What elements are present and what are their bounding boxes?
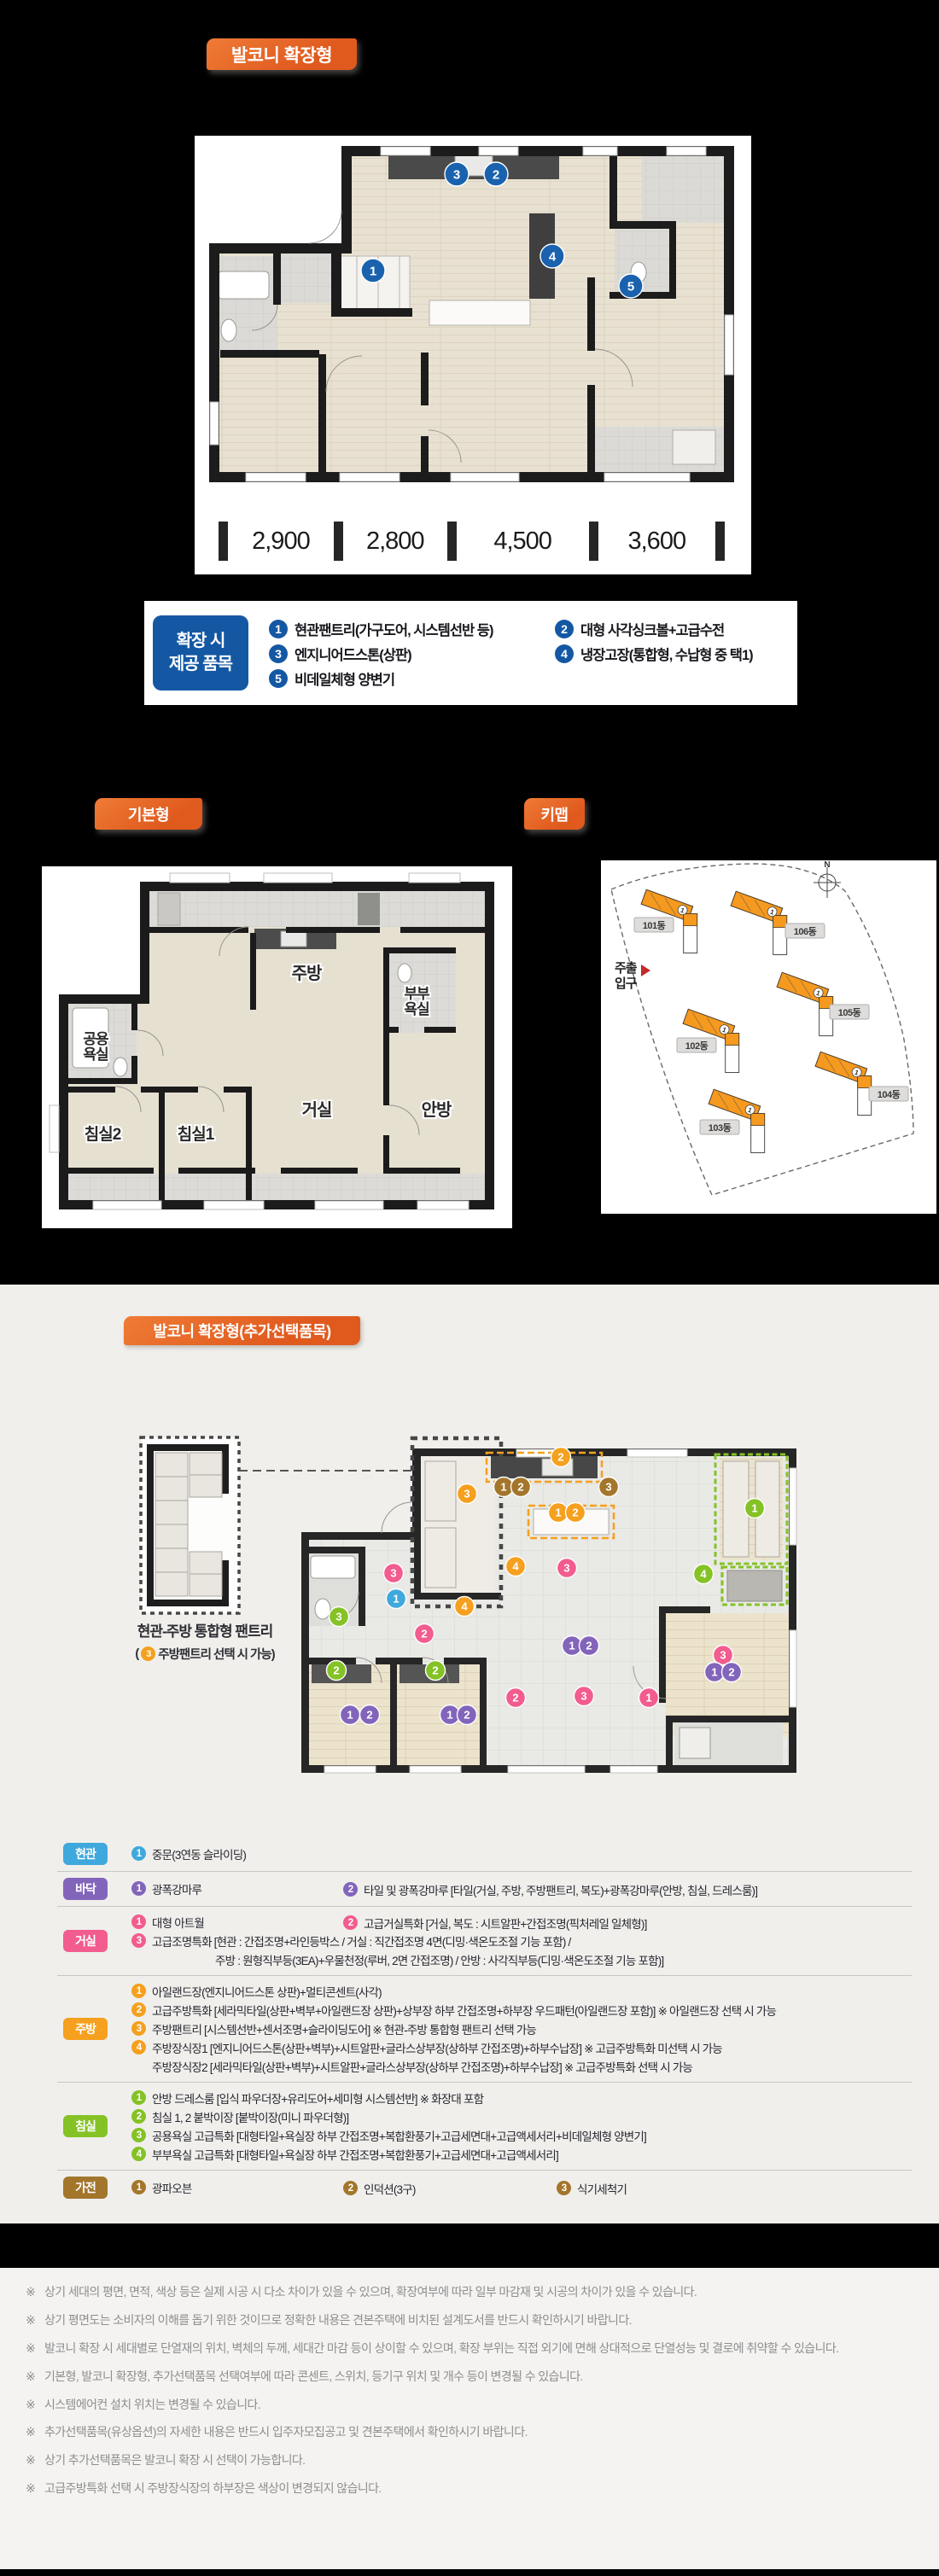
legend-category-badge: 가전	[63, 2177, 108, 2199]
svg-text:3: 3	[605, 1481, 611, 1494]
legend-line: 1대형 아트월2고급거실특화 [거실, 복도 : 시트알판+간접조명(픽처레일 …	[131, 1913, 912, 1932]
note-item: ※고급주방특화 선택 시 주방장식장의 하부장은 색상이 변경되지 않습니다.	[26, 2480, 920, 2497]
expansion-item-label: 비데일체형 양변기	[295, 668, 394, 689]
note-marker: ※	[26, 2452, 35, 2469]
svg-text:2: 2	[728, 1666, 734, 1679]
note-text: 시스템에어컨 설치 위치는 변경될 수 있습니다.	[44, 2398, 260, 2411]
dimension-tick	[334, 522, 343, 561]
item-number-icon: 1	[131, 1915, 146, 1929]
expansion-items-card: 확장 시 제공 품목 1현관팬트리(가구도어, 시스템선반 등)2대형 사각싱크…	[144, 601, 797, 705]
note-text: 추가선택품목(유상옵션)의 자세한 내용은 반드시 입주자모집공고 및 견본주택…	[44, 2425, 528, 2439]
dimension-bar: 2,9002,8004,5003,600	[219, 522, 725, 561]
plan-marker: 2	[511, 1477, 531, 1497]
plan-marker: 2	[327, 1661, 347, 1681]
note-item: ※추가선택품목(유상옵션)의 자세한 내용은 반드시 입주자모집공고 및 견본주…	[26, 2424, 920, 2441]
entrance-arrow-icon	[641, 965, 650, 976]
legend-badge-cell: 침실	[57, 2115, 131, 2137]
note-item: ※상기 추가선택품목은 발코니 확장 시 선택이 가능합니다.	[26, 2452, 920, 2469]
legend-item: 2고급주방특화 [세라믹타일(상판+벽부+아일랜드장 상판)+상부장 하부 간접…	[131, 2002, 776, 2019]
legend-item: 3주방팬트리 [시스템선반+센서조명+슬라이딩도어] ※ 현관-주방 통합형 팬…	[131, 2020, 536, 2037]
note-text: 상기 세대의 평면, 면적, 색상 등은 실제 시공 시 다소 차이가 있을 수…	[44, 2285, 697, 2299]
title-badge-basic: 기본형	[95, 798, 202, 830]
svg-text:3: 3	[390, 1567, 396, 1580]
plan-marker: 3	[330, 1607, 349, 1627]
item-number-icon: 2	[131, 2109, 146, 2124]
legend-item: 4부부욕실 고급특화 [대형타일+욕실장 하부 간접조명+복합환풍기+고급세면대…	[131, 2146, 558, 2163]
legend-line: 1광폭강마루2타일 및 광폭강마루 [타일(거실, 주방, 주방팬트리, 복도)…	[131, 1880, 912, 1898]
legend-line: 3공용욕실 고급특화 [대형타일+욕실장 하부 간접조명+복합환풍기+고급세면대…	[131, 2126, 912, 2145]
entrance-label-line2: 입구	[615, 976, 638, 991]
legend-badge-cell: 바닥	[57, 1878, 131, 1900]
legend-item: 2침실 1, 2 붙박이장 [붙박이장(미니 파우더형)]	[131, 2108, 348, 2125]
plan-marker: 2	[566, 1503, 586, 1523]
svg-text:1: 1	[569, 1640, 574, 1652]
plan-marker: 3	[458, 1484, 477, 1504]
legend-row-content: 1광폭강마루2타일 및 광폭강마루 [타일(거실, 주방, 주방팬트리, 복도)…	[131, 1880, 912, 1898]
svg-text:4: 4	[549, 249, 557, 264]
legend-line: 2고급주방특화 [세라믹타일(상판+벽부+아일랜드장 상판)+상부장 하부 간접…	[131, 2001, 912, 2019]
legend-item: 2인덕션(3구)	[343, 2180, 416, 2197]
legend-badge-cell: 현관	[57, 1843, 131, 1865]
svg-text:2: 2	[421, 1628, 427, 1641]
legend-row-content: 1중문(3연동 슬라이딩)	[131, 1845, 912, 1863]
legend-line: 3고급조명특화 [현관 : 간접조명+라인등박스 / 거실 : 직간접조명 4면…	[131, 1932, 912, 1950]
legend-row-content: 1광파오븐2인덕션(3구)3식기세척기	[131, 2178, 912, 2197]
svg-text:105동: 105동	[838, 1007, 861, 1018]
note-text: 고급주방특화 선택 시 주방장식장의 하부장은 색상이 변경되지 않습니다.	[44, 2481, 382, 2495]
legend-line: 주방 : 원형직부등(3EA)+우물천정(루버, 2면 간접조명) / 안방 :…	[131, 1950, 912, 1969]
expansion-item-label: 현관팬트리(가구도어, 시스템선반 등)	[295, 619, 493, 639]
legend-row: 바닥1광폭강마루2타일 및 광폭강마루 [타일(거실, 주방, 주방팬트리, 복…	[57, 1872, 912, 1907]
svg-text:1: 1	[347, 1709, 353, 1722]
legend-item: 3식기세척기	[557, 2180, 627, 2197]
keymap-buildings: 1101동1106동1105동1102동1104동1103동	[630, 889, 908, 1157]
item-number-icon: 2	[343, 1882, 358, 1897]
legend-row: 침실1안방 드레스룸 [입식 파우더장+유리도어+세미형 시스템선반] ※ 화장…	[57, 2083, 912, 2171]
legend-line: 1안방 드레스룸 [입식 파우더장+유리도어+세미형 시스템선반] ※ 화장대 …	[131, 2089, 912, 2107]
dimension-value: 4,500	[457, 527, 589, 556]
divider-band	[0, 2223, 939, 2268]
svg-text:2: 2	[464, 1709, 469, 1722]
legend-item-text: 고급주방특화 [세라믹타일(상판+벽부+아일랜드장 상판)+상부장 하부 간접조…	[152, 2002, 776, 2019]
plan-marker: 4	[455, 1597, 475, 1617]
legend-item: 3공용욕실 고급특화 [대형타일+욕실장 하부 간접조명+복합환풍기+고급세면대…	[131, 2127, 646, 2144]
plan-marker: 4	[694, 1565, 714, 1584]
legend-row: 주방1아일랜드장(엔지니어드스톤 상판)+멀티콘센트(사각)2고급주방특화 [세…	[57, 1976, 912, 2083]
note-text: 상기 평면도는 소비자의 이해를 돕기 위한 것이므로 정확한 내용은 견본주택…	[44, 2313, 632, 2327]
legend-item-text: 주방장식장1 [엔지니어드스톤(상판+벽부)+시트알판+글라스상부장(상하부 간…	[152, 2039, 722, 2056]
legend-item-text: 대형 아트월	[152, 1914, 204, 1931]
floorplan-expanded: 12345	[195, 136, 751, 518]
title-badge-optional: 발코니 확장형(추가선택품목)	[124, 1316, 360, 1345]
legend-category-badge: 침실	[63, 2115, 108, 2137]
dimension-tick	[589, 522, 598, 561]
expansion-item: 2대형 사각싱크볼+고급수전	[555, 620, 753, 638]
pantry-caption: 현관-주방 통합형 팬트리 ( 3 주방팬트리 선택 시 가능)	[85, 1619, 324, 1663]
legend-item: 4주방장식장1 [엔지니어드스톤(상판+벽부)+시트알판+글라스상부장(상하부 …	[131, 2039, 722, 2056]
dimension-tick	[715, 522, 725, 561]
svg-text:2: 2	[493, 167, 499, 182]
legend-item-text: 부부욕실 고급특화 [대형타일+욕실장 하부 간접조명+복합환풍기+고급세면대+…	[152, 2146, 558, 2163]
note-item: ※기본형, 발코니 확장형, 추가선택품목 선택여부에 따라 콘센트, 스위치,…	[26, 2369, 920, 2386]
legend-line: 1중문(3연동 슬라이딩)	[131, 1845, 912, 1863]
expansion-item: 5비데일체형 양변기	[269, 669, 555, 688]
item-number-icon: 5	[269, 669, 288, 688]
legend-item-text: 안방 드레스룸 [입식 파우더장+유리도어+세미형 시스템선반] ※ 화장대 포…	[152, 2089, 483, 2107]
plan-marker: 1	[745, 1499, 765, 1518]
plan-marker: 3	[557, 1559, 577, 1578]
item-number-icon: 2	[131, 2002, 146, 2017]
room-label: 침실2	[85, 1125, 121, 1144]
item-number-icon: 1	[269, 620, 288, 638]
caption-paren-open: (	[135, 1647, 138, 1661]
title-badge-keymap: 키맵	[524, 798, 585, 830]
expansion-label: 확장 시 제공 품목	[153, 615, 248, 691]
building-label: 103동	[700, 1120, 739, 1134]
svg-text:4: 4	[461, 1600, 468, 1613]
pantry-caption-title: 현관-주방 통합형 팬트리	[85, 1619, 324, 1641]
compass-icon	[814, 867, 841, 898]
plan-marker: 3	[384, 1564, 404, 1583]
legend-item-text: 인덕션(3구)	[364, 2180, 416, 2197]
building-label: 102동	[677, 1038, 716, 1052]
svg-text:3: 3	[335, 1611, 341, 1623]
floorplan-card-expanded: 12345 2,9002,8004,5003,600	[195, 136, 751, 574]
legend-line: 주방장식장2 [세라믹타일(상판+벽부)+시트알판+글라스상부장(상하부 간접조…	[131, 2057, 912, 2076]
legend-item: 2고급거실특화 [거실, 복도 : 시트알판+간접조명(픽처레일 일체형)]	[343, 1915, 647, 1932]
legend-category-badge: 주방	[63, 2018, 108, 2040]
svg-text:1: 1	[555, 1507, 561, 1519]
svg-text:1: 1	[500, 1481, 506, 1494]
legend-line: 2침실 1, 2 붙박이장 [붙박이장(미니 파우더형)]	[131, 2107, 912, 2126]
note-marker: ※	[26, 2312, 35, 2329]
legend-row-content: 1아일랜드장(엔지니어드스톤 상판)+멀티콘센트(사각)2고급주방특화 [세라믹…	[131, 1982, 912, 2076]
legend-line: 4부부욕실 고급특화 [대형타일+욕실장 하부 간접조명+복합환풍기+고급세면대…	[131, 2145, 912, 2164]
svg-text:106동: 106동	[794, 926, 817, 937]
legend-item: 1안방 드레스룸 [입식 파우더장+유리도어+세미형 시스템선반] ※ 화장대 …	[131, 2089, 483, 2107]
expansion-item: 1현관팬트리(가구도어, 시스템선반 등)	[269, 620, 555, 638]
legend-row-content: 1대형 아트월2고급거실특화 [거실, 복도 : 시트알판+간접조명(픽처레일 …	[131, 1913, 912, 1969]
legend-item: 2타일 및 광폭강마루 [타일(거실, 주방, 주방팬트리, 복도)+광폭강마루…	[343, 1881, 757, 1898]
legend-row: 거실1대형 아트월2고급거실특화 [거실, 복도 : 시트알판+간접조명(픽처레…	[57, 1907, 912, 1976]
svg-text:1: 1	[751, 1502, 757, 1515]
floorplan-optional: 231244123332231311432212121212	[77, 1417, 845, 1818]
building-label: 104동	[869, 1087, 908, 1101]
svg-text:2: 2	[557, 1451, 563, 1464]
legend-category-badge: 현관	[63, 1843, 108, 1865]
svg-text:1: 1	[711, 1666, 717, 1679]
legend-line: 1아일랜드장(엔지니어드스톤 상판)+멀티콘센트(사각)	[131, 1982, 912, 2001]
svg-text:4: 4	[512, 1560, 519, 1573]
dimension-value: 2,900	[228, 527, 334, 556]
note-text: 기본형, 발코니 확장형, 추가선택품목 선택여부에 따라 콘센트, 스위치, …	[44, 2369, 583, 2383]
building-label: 101동	[634, 918, 674, 932]
svg-text:1: 1	[645, 1692, 651, 1705]
item-number-icon: 3	[131, 2021, 146, 2036]
item-number-icon: 1	[131, 2090, 146, 2105]
legend-item-text: 고급조명특화 [현관 : 간접조명+라인등박스 / 거실 : 직간접조명 4면(…	[152, 1932, 570, 1949]
caption-note-text: 주방팬트리 선택 시 가능)	[158, 1645, 274, 1663]
plan-marker: 3	[574, 1687, 594, 1706]
floorplan-optional-wrap: 231244123332231311432212121212 현관-주방 통합형…	[77, 1417, 845, 1818]
legend-item-text: 주방팬트리 [시스템선반+센서조명+슬라이딩도어] ※ 현관-주방 통합형 팬트…	[152, 2020, 536, 2037]
svg-text:1: 1	[393, 1593, 399, 1606]
legend-item: 1광파오븐	[131, 2179, 191, 2196]
plan-marker: 1	[341, 1705, 360, 1725]
legend-badge-cell: 가전	[57, 2177, 131, 2199]
plan-marker: 4	[506, 1557, 526, 1576]
plan-marker: 2	[458, 1705, 477, 1725]
expansion-item: 4냉장고장(통합형, 수납형 중 택1)	[555, 644, 753, 663]
legend-item: 1아일랜드장(엔지니어드스톤 상판)+멀티콘센트(사각)	[131, 1983, 382, 2000]
building-icon: 1	[804, 1052, 885, 1119]
svg-text:3: 3	[563, 1562, 569, 1575]
title-badge-expanded: 발코니 확장형	[207, 38, 357, 70]
main-entrance: 주출 입구	[615, 961, 650, 991]
svg-text:103동: 103동	[709, 1122, 732, 1134]
svg-text:2: 2	[586, 1640, 592, 1652]
svg-text:101동: 101동	[643, 920, 666, 931]
legend-row: 현관1중문(3연동 슬라이딩)	[57, 1837, 912, 1872]
plan-marker: 2	[551, 1448, 571, 1467]
keymap-card: N 주출 입구 1101동1106동1105동1102동1104동1103동	[601, 860, 936, 1214]
plan-marker: 2	[722, 1663, 742, 1682]
svg-text:2: 2	[333, 1664, 339, 1677]
note-marker: ※	[26, 2397, 35, 2414]
svg-text:4: 4	[700, 1568, 707, 1581]
legend-item-text: 광폭강마루	[152, 1880, 201, 1897]
svg-text:2: 2	[366, 1709, 372, 1722]
plan-marker: 1	[639, 1688, 659, 1708]
svg-text:1: 1	[446, 1709, 452, 1722]
legend-line: 4주방장식장1 [엔지니어드스톤(상판+벽부)+시트알판+글라스상부장(상하부 …	[131, 2038, 912, 2057]
legend-line: 3주방팬트리 [시스템선반+센서조명+슬라이딩도어] ※ 현관-주방 통합형 팬…	[131, 2019, 912, 2038]
caption-number-icon: 3	[141, 1646, 155, 1661]
option-legend: 현관1중문(3연동 슬라이딩)바닥1광폭강마루2타일 및 광폭강마루 [타일(거…	[57, 1837, 912, 2205]
plan-marker: 1	[387, 1589, 406, 1609]
item-number-icon: 4	[131, 2040, 146, 2054]
legend-category-badge: 바닥	[63, 1878, 108, 1900]
room-label: 부부욕실	[404, 986, 430, 1017]
expansion-item-label: 냉장고장(통합형, 수납형 중 택1)	[580, 644, 753, 664]
svg-text:3: 3	[464, 1488, 469, 1501]
room-label: 거실	[302, 1100, 332, 1120]
dimension-tick	[219, 522, 228, 561]
item-number-icon: 4	[555, 644, 574, 663]
item-number-icon: 2	[555, 620, 574, 638]
plan-marker: 3	[599, 1477, 619, 1497]
svg-text:3: 3	[720, 1649, 726, 1662]
item-number-icon: 1	[131, 2180, 146, 2194]
legend-item-text: 침실 1, 2 붙박이장 [붙박이장(미니 파우더형)]	[152, 2108, 348, 2125]
svg-text:2: 2	[572, 1507, 578, 1519]
legend-item-text: 식기세척기	[577, 2180, 627, 2197]
svg-text:102동: 102동	[685, 1040, 709, 1052]
plan-marker: 4	[540, 244, 564, 268]
legend-line: 1광파오븐2인덕션(3구)3식기세척기	[131, 2178, 912, 2197]
expansion-item: 3엔지니어드스톤(상판)	[269, 644, 555, 663]
legend-item: 1광폭강마루	[131, 1880, 201, 1897]
plan-marker: 2	[506, 1688, 526, 1708]
legend-item: 3고급조명특화 [현관 : 간접조명+라인등박스 / 거실 : 직간접조명 4면…	[131, 1932, 570, 1949]
note-item: ※시스템에어컨 설치 위치는 변경될 수 있습니다.	[26, 2397, 920, 2414]
item-number-icon: 1	[131, 1881, 146, 1896]
legend-badge-cell: 거실	[57, 1930, 131, 1952]
note-marker: ※	[26, 2369, 35, 2386]
note-text: 상기 추가선택품목은 발코니 확장 시 선택이 가능합니다.	[44, 2453, 305, 2467]
item-number-icon: 4	[131, 2147, 146, 2161]
svg-text:2: 2	[517, 1481, 523, 1494]
compass-north-label: N	[824, 860, 830, 870]
legend-item-text: 타일 및 광폭강마루 [타일(거실, 주방, 주방팬트리, 복도)+광폭강마루(…	[364, 1881, 757, 1898]
item-number-icon: 3	[131, 1933, 146, 1948]
expansion-item-label: 엔지니어드스톤(상판)	[295, 644, 411, 664]
building-label: 105동	[830, 1005, 869, 1019]
note-text: 발코니 확장 시 세대별로 단열재의 위치, 벽체의 두께, 세대간 마감 등이…	[44, 2341, 838, 2355]
legend-category-badge: 거실	[63, 1930, 108, 1952]
plan-marker: 3	[445, 162, 469, 186]
plan-marker: 2	[580, 1636, 599, 1656]
item-number-icon: 3	[131, 2128, 146, 2142]
note-item: ※상기 평면도는 소비자의 이해를 돕기 위한 것이므로 정확한 내용은 견본주…	[26, 2312, 920, 2329]
item-number-icon: 2	[343, 1915, 358, 1930]
entrance-label-line1: 주출	[615, 961, 638, 976]
legend-row-content: 1안방 드레스룸 [입식 파우더장+유리도어+세미형 시스템선반] ※ 화장대 …	[131, 2089, 912, 2164]
notes-list: ※상기 세대의 평면, 면적, 색상 등은 실제 시공 시 다소 차이가 있을 …	[26, 2284, 920, 2509]
floorplan-card-basic: 주방부부욕실공용욕실침실2침실1거실안방	[42, 866, 512, 1228]
note-marker: ※	[26, 2284, 35, 2301]
item-number-icon: 1	[131, 1984, 146, 1998]
dimension-tick	[447, 522, 457, 561]
room-label: 안방	[422, 1100, 452, 1120]
plan-marker: 2	[360, 1705, 380, 1725]
legend-badge-cell: 주방	[57, 2018, 131, 2040]
expansion-label-line2: 제공 품목	[169, 653, 232, 676]
bottom-strip	[0, 2569, 939, 2576]
building-label: 106동	[785, 924, 825, 938]
brochure-page: 발코니 확장형	[0, 0, 939, 2576]
legend-item-text: 광파오븐	[152, 2179, 191, 2196]
item-number-icon: 2	[343, 2181, 358, 2195]
dimension-value: 2,800	[343, 527, 447, 556]
dimension-value: 3,600	[598, 527, 715, 556]
item-number-icon: 1	[131, 1846, 146, 1861]
expansion-label-line1: 확장 시	[177, 630, 225, 653]
svg-text:104동: 104동	[878, 1089, 901, 1100]
room-label: 주방	[292, 964, 323, 983]
note-item: ※상기 세대의 평면, 면적, 색상 등은 실제 시공 시 다소 차이가 있을 …	[26, 2284, 920, 2301]
item-number-icon: 3	[557, 2181, 571, 2195]
note-marker: ※	[26, 2480, 35, 2497]
note-item: ※발코니 확장 시 세대별로 단열재의 위치, 벽체의 두께, 세대간 마감 등…	[26, 2340, 920, 2357]
plan-marker: 1	[361, 259, 385, 283]
legend-item-text: 고급거실특화 [거실, 복도 : 시트알판+간접조명(픽처레일 일체형)]	[364, 1915, 647, 1932]
svg-text:2: 2	[512, 1692, 518, 1705]
svg-text:2: 2	[432, 1664, 438, 1677]
note-marker: ※	[26, 2424, 35, 2441]
svg-text:5: 5	[627, 279, 634, 294]
plan-marker: 2	[484, 162, 508, 186]
plan-marker: 2	[426, 1661, 446, 1681]
room-label: 공용욕실	[83, 1031, 109, 1063]
pantry-inset	[141, 1437, 239, 1613]
pantry-caption-note: ( 3 주방팬트리 선택 시 가능)	[85, 1645, 324, 1663]
keymap: N 주출 입구 1101동1106동1105동1102동1104동1103동	[601, 860, 936, 1214]
legend-item-continuation: 주방장식장2 [세라믹타일(상판+벽부)+시트알판+글라스상부장(상하부 간접조…	[152, 2058, 692, 2075]
expansion-items: 1현관팬트리(가구도어, 시스템선반 등)2대형 사각싱크볼+고급수전3엔지니어…	[269, 620, 753, 688]
svg-text:3: 3	[580, 1690, 586, 1703]
legend-item-continuation: 주방 : 원형직부등(3EA)+우물천정(루버, 2면 간접조명) / 안방 :…	[215, 1951, 663, 1968]
legend-item-text: 공용욕실 고급특화 [대형타일+욕실장 하부 간접조명+복합환풍기+고급세면대+…	[152, 2127, 646, 2144]
note-marker: ※	[26, 2340, 35, 2357]
legend-item: 1중문(3연동 슬라이딩)	[131, 1845, 246, 1862]
svg-text:1: 1	[370, 264, 376, 278]
legend-row: 가전1광파오븐2인덕션(3구)3식기세척기	[57, 2171, 912, 2205]
legend-item: 1대형 아트월	[131, 1914, 204, 1931]
legend-item-text: 중문(3연동 슬라이딩)	[152, 1845, 246, 1862]
item-number-icon: 3	[269, 644, 288, 663]
room-label: 침실1	[178, 1125, 215, 1144]
expansion-item-label: 대형 사각싱크볼+고급수전	[580, 619, 724, 639]
plan-marker: 2	[415, 1624, 435, 1644]
plan-marker: 5	[619, 274, 643, 298]
svg-text:3: 3	[453, 167, 460, 182]
floorplan-basic: 주방부부욕실공용욕실침실2침실1거실안방	[42, 866, 512, 1228]
legend-item-text: 아일랜드장(엔지니어드스톤 상판)+멀티콘센트(사각)	[152, 1983, 382, 2000]
